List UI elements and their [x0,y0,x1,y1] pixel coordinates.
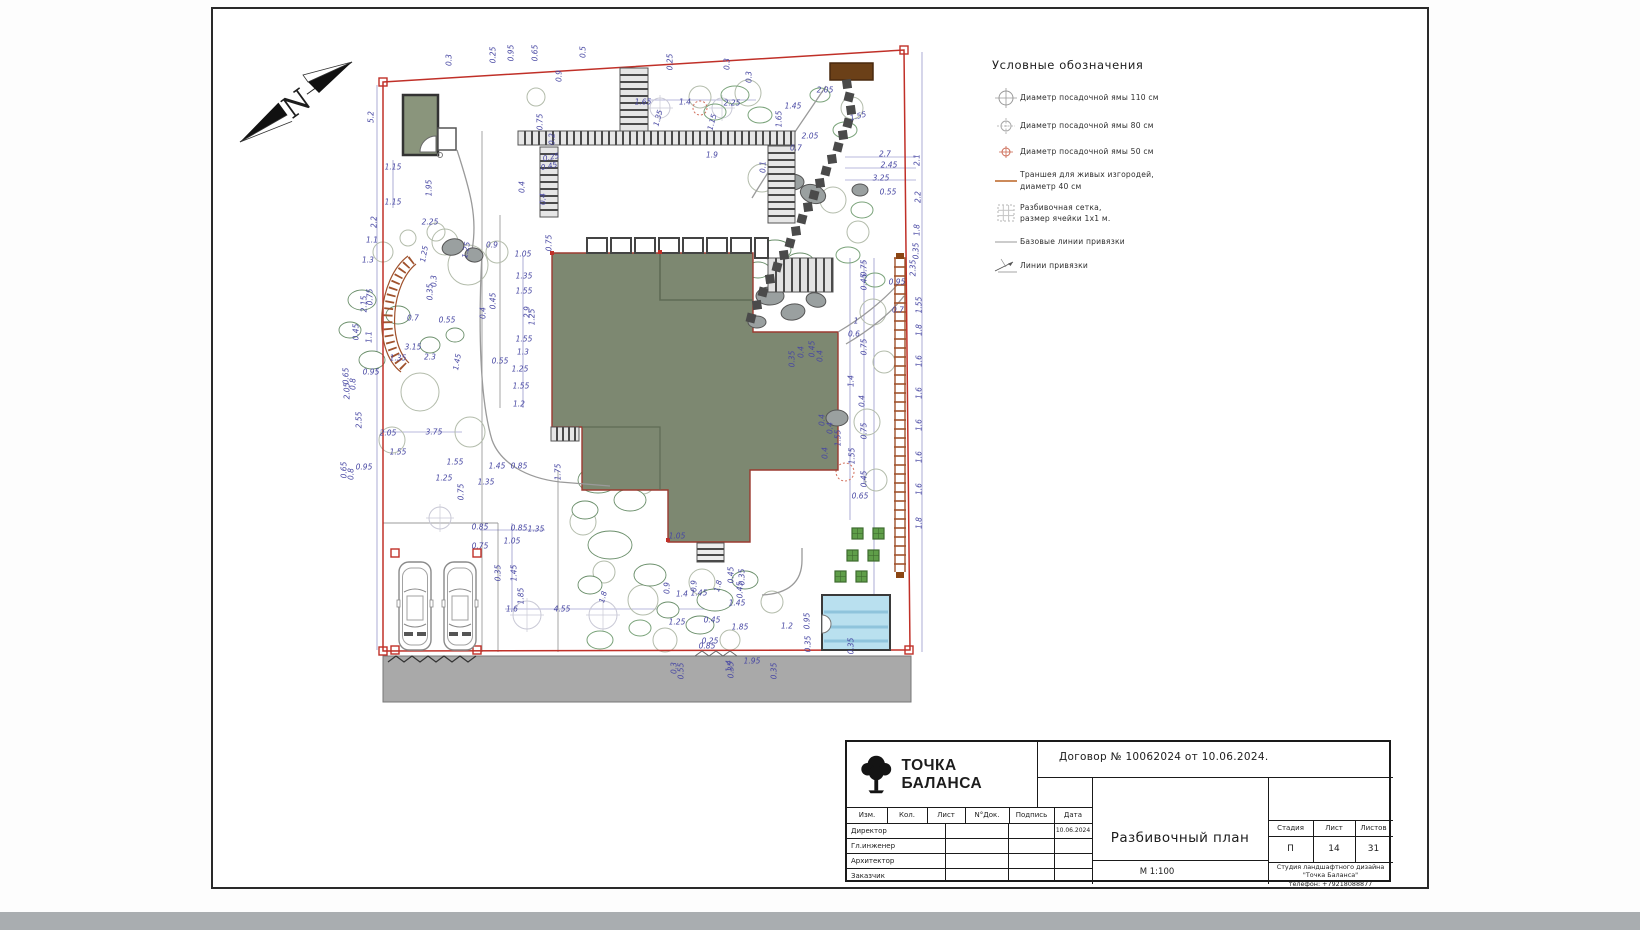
boulder [686,616,714,634]
boulder [657,602,679,618]
grid-icon [992,203,1020,223]
stepping-stone [752,300,762,310]
legend-item: Траншея для живых изгородей,диаметр 40 с… [992,169,1242,193]
boulder [420,337,440,353]
stepping-stone [779,250,789,260]
tree-logo-icon [857,749,896,801]
legend-item-label: Диаметр посадочной ямы 50 см [1020,146,1154,158]
title-block: ТОЧКА БАЛАНСА Договор № 10062024 от 10.0… [845,740,1391,882]
legend-item-label: Диаметр посадочной ямы 80 см [1020,120,1154,132]
stepping-stone [842,79,852,89]
legend-item-label: Диаметр посадочной ямы 110 см [1020,92,1159,104]
page-bottom-strip [0,912,1640,930]
garden-structure [830,63,873,80]
studio-logo: ТОЧКА БАЛАНСА [847,742,1037,807]
survey-point [658,250,662,254]
legend-item: Диаметр посадочной ямы 110 см [992,88,1242,108]
boulder [572,501,598,519]
sig-date: 10.06.2024 [1054,823,1092,838]
boulder [732,571,758,589]
boulder [697,589,733,611]
contract-number: Договор № 10062024 от 10.06.2024. [1059,751,1268,763]
stage-value: П [1268,836,1313,862]
legend-item-label: Линии привязки [1020,260,1088,272]
studio-line: "Точка Баланса" [1268,871,1393,879]
stepping-stone [791,226,801,236]
legend-item: Разбивочная сетка,размер ячейки 1х1 м. [992,202,1242,226]
pool [822,595,890,650]
pit-80-icon [992,117,1020,135]
legend-item: Базовые линии привязки [992,234,1242,249]
sig-header: N°Док. [965,807,1009,823]
tieline-icon [992,258,1020,274]
sig-header: Кол. [887,807,927,823]
planter-box [707,238,727,253]
legend-items: Диаметр посадочной ямы 110 смДиаметр пос… [992,88,1242,274]
sheets-label: Листов [1355,820,1392,836]
sheets-value: 31 [1355,836,1392,862]
planter-box [755,238,768,258]
site-plan-drawing: N [0,0,1640,930]
pit-50-icon [992,144,1020,160]
planter-box [683,238,703,253]
sig-role: Архитектор [851,853,945,868]
document-title: Разбивочный план [1092,830,1268,846]
sheet-value: 14 [1313,836,1355,862]
legend-item-label: Базовые линии привязки [1020,236,1125,248]
baseline-icon [992,239,1020,245]
stepping-stone [827,154,837,164]
legend-item-label: Траншея для живых изгородей,диаметр 40 с… [1020,169,1154,193]
studio-contact: Студия ландшафтного дизайна "Точка Балан… [1268,863,1393,888]
sheet-label: Лист [1313,820,1355,836]
road [383,656,911,702]
rock [826,410,848,426]
legend: Условные обозначения Диаметр посадочной … [992,58,1242,283]
boulder [588,531,632,559]
sig-header: Изм. [847,807,887,823]
stage-label: Стадия [1268,820,1313,836]
studio-line: телефон: +79218088877 [1268,880,1393,888]
stepping-stone [838,130,848,140]
planter-box [611,238,631,253]
paver-path [697,543,724,562]
legend-item: Диаметр посадочной ямы 50 см [992,144,1242,160]
legend-item-label: Разбивочная сетка,размер ячейки 1х1 м. [1020,202,1110,226]
sig-role: Директор [851,823,945,838]
drawing-scale: М 1:100 [1092,867,1222,877]
paver-path [620,68,648,131]
survey-point [550,251,554,255]
boulder [339,322,361,338]
sig-header: Лист [927,807,965,823]
survey-point [666,538,670,542]
sig-header: Подпись [1009,807,1054,823]
sig-role: Гл.инженер [851,838,945,853]
sig-role: Заказчик [851,868,945,883]
boulder [578,576,602,594]
boulder [614,489,646,511]
planter-box [587,238,607,253]
stepping-stone [815,178,825,188]
stepping-stone [803,202,813,212]
boulder [348,290,376,310]
boulder [634,564,666,586]
parked-car [397,562,433,650]
studio-logo-text: ТОЧКА БАЛАНСА [902,757,1037,793]
trench-icon [992,177,1020,185]
stepping-stone [765,274,775,284]
legend-title: Условные обозначения [992,58,1242,72]
legend-item: Линии привязки [992,258,1242,274]
pit-110-icon [992,88,1020,108]
studio-line: Студия ландшафтного дизайна [1268,863,1393,871]
legend-item: Диаметр посадочной ямы 80 см [992,117,1242,135]
boulder [446,328,464,342]
planter-box [635,238,655,253]
parked-car [442,562,478,650]
boulder [359,351,385,369]
rock [852,184,868,196]
planter-box [731,238,751,253]
sig-header: Дата [1054,807,1092,823]
drawing-page: N 0.3 [0,0,1640,930]
stepping-stone [846,105,856,115]
paver-path [768,146,795,223]
